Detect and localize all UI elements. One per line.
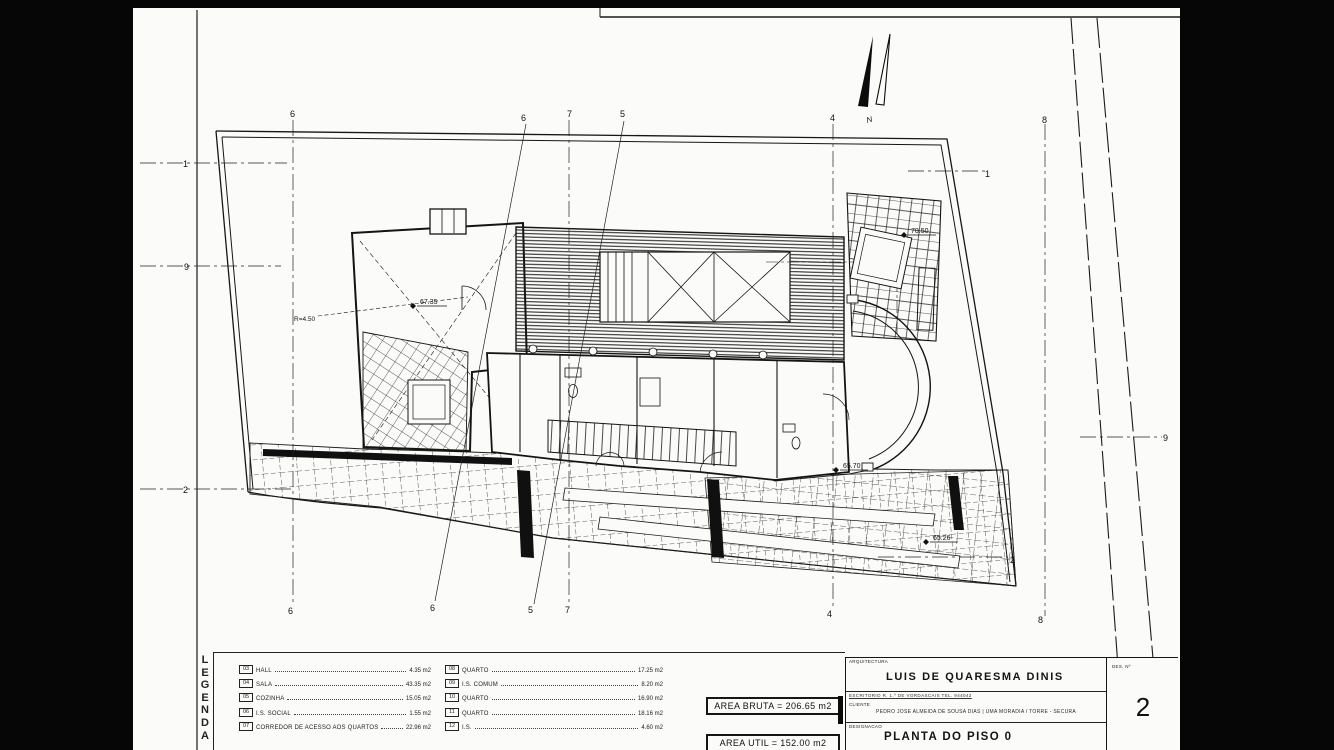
- floor-plan-drawing: 6 6 7 5 4 8 6 6 5 7 4 8 1 9 2 1 9 2 67.3…: [0, 0, 1334, 750]
- room-label: QUARTO: [462, 696, 489, 702]
- area-util-text: AREA UTIL = 152.00 m2: [720, 738, 827, 748]
- grid-axis-label: 6: [521, 113, 526, 123]
- room-number: 09: [445, 679, 459, 688]
- room-label: HALL: [256, 668, 272, 674]
- grid-axis-label: 1: [183, 159, 188, 169]
- title-block: ARQUITECTURA LUIS DE QUARESMA DINIS ESCR…: [845, 657, 1178, 750]
- entry-terrace: [847, 193, 941, 341]
- room-number: 11: [445, 708, 459, 717]
- road-lines: [1071, 18, 1161, 750]
- room-number: 10: [445, 693, 459, 702]
- grid-axis-label: 9: [184, 262, 189, 272]
- room-label: QUARTO: [462, 711, 489, 717]
- legend-row: 04 SALA 43.35 m2: [239, 679, 431, 688]
- dotted-leader: [275, 685, 403, 686]
- grid-axis-label: 5: [528, 605, 533, 615]
- room-area: 4.35 m2: [409, 668, 431, 674]
- grid-axis-label: 6: [430, 603, 435, 613]
- grid-axis-label: 4: [830, 113, 835, 123]
- office-row: ESCRITORIO R. 1.º DE VORDASCAIS TEL. 944…: [846, 691, 1106, 701]
- legend-row: 07 CORREDOR DE ACESSO AOS QUARTOS 22.96 …: [239, 722, 431, 731]
- designation-row: DESIGNACAO PLANTA DO PISO 0: [846, 722, 1106, 750]
- level-value: 65.70: [843, 463, 861, 470]
- client-line: PEDRO JOSE ALMEIDA DE SOUSA DIAS | UMA M…: [876, 709, 1076, 715]
- legend-row: 09 I.S. COMUM 8.20 m2: [445, 679, 663, 688]
- level-value: 65.26: [933, 535, 951, 542]
- title-block-main: ARQUITECTURA LUIS DE QUARESMA DINIS ESCR…: [846, 658, 1106, 750]
- room-area: 4.60 m2: [641, 725, 663, 731]
- legend-row: 08 QUARTO 17.25 m2: [445, 665, 663, 674]
- scanned-plan-sheet: { "plan": { "grid": { "top": ["6", "6", …: [0, 0, 1334, 750]
- legend-row: 10 QUARTO 16.90 m2: [445, 693, 663, 702]
- area-bruta-text: AREA BRUTA = 206.65 m2: [714, 701, 831, 711]
- room-label: I.S. SOCIAL: [256, 711, 291, 717]
- room-number: 05: [239, 693, 253, 702]
- room-number: 03: [239, 665, 253, 674]
- grid-axis-label: 7: [567, 109, 572, 119]
- client-label: CLIENTE: [849, 702, 870, 707]
- room-label: SALA: [256, 682, 272, 688]
- room-number: 07: [239, 722, 253, 731]
- grid-axis-label: 6: [288, 606, 293, 616]
- legend-column-1: 03 HALL 4.35 m2 04 SALA 43.35 m2 05 COZI…: [239, 665, 431, 736]
- scan-black-bar-right: [1180, 0, 1334, 750]
- room-area: 17.25 m2: [638, 668, 663, 674]
- dotted-leader: [381, 728, 402, 729]
- grid-axis-label: 8: [1042, 115, 1047, 125]
- designation-label: DESIGNACAO: [849, 724, 882, 729]
- room-area: 16.90 m2: [638, 696, 663, 702]
- room-label: COZINHA: [256, 696, 284, 702]
- grid-axis-label: 1: [985, 169, 990, 179]
- sheet-number-cell: DES. Nº 2: [1106, 658, 1179, 750]
- room-number: 06: [239, 708, 253, 717]
- level-value: 70.50: [911, 228, 929, 235]
- scan-black-bar-top: [0, 0, 1334, 8]
- room-label: CORREDOR DE ACESSO AOS QUARTOS: [256, 725, 378, 731]
- room-area: 8.20 m2: [641, 682, 663, 688]
- room-area: 1.55 m2: [409, 711, 431, 717]
- architect-row: ARQUITECTURA LUIS DE QUARESMA DINIS: [846, 658, 1106, 691]
- room-area: 15.05 m2: [406, 696, 431, 702]
- room-number: 04: [239, 679, 253, 688]
- area-bruta-box: AREA BRUTA = 206.65 m2: [706, 697, 840, 715]
- legend-row: 03 HALL 4.35 m2: [239, 665, 431, 674]
- grid-axis-label: 9: [1163, 433, 1168, 443]
- ink-mark: [838, 696, 843, 724]
- dotted-leader: [287, 699, 403, 700]
- sheet-number: 2: [1107, 692, 1179, 723]
- room-area: 43.35 m2: [406, 682, 431, 688]
- legend-column-2: 08 QUARTO 17.25 m2 09 I.S. COMUM 8.20 m2…: [445, 665, 663, 736]
- room-number: 12: [445, 722, 459, 731]
- area-util-box: AREA UTIL = 152.00 m2: [706, 734, 840, 750]
- room-label: QUARTO: [462, 668, 489, 674]
- dotted-leader: [492, 671, 635, 672]
- room-area: 18.16 m2: [638, 711, 663, 717]
- grid-axis-label: 8: [1038, 615, 1043, 625]
- architect-name: LUIS DE QUARESMA DINIS: [886, 671, 1064, 683]
- office-line: ESCRITORIO R. 1.º DE VORDASCAIS TEL. 944…: [849, 693, 972, 698]
- client-row: CLIENTE PEDRO JOSE ALMEIDA DE SOUSA DIAS…: [846, 701, 1106, 722]
- dotted-leader: [275, 671, 407, 672]
- north-label: N: [865, 115, 873, 125]
- room-number: 08: [445, 665, 459, 674]
- room-label: I.S.: [462, 725, 472, 731]
- legend-row: 05 COZINHA 15.05 m2: [239, 693, 431, 702]
- dotted-leader: [294, 714, 406, 715]
- legend-title-vertical: LE GE ND A: [197, 654, 213, 742]
- grid-axis-label: 2: [1010, 555, 1015, 565]
- grid-axis-label: 6: [290, 109, 295, 119]
- room-area: 22.96 m2: [406, 725, 431, 731]
- section-label: ARQUITECTURA: [849, 659, 888, 664]
- drawing-title: PLANTA DO PISO 0: [884, 731, 1012, 743]
- dotted-leader: [492, 714, 635, 715]
- grid-axis-label: 5: [620, 109, 625, 119]
- scan-black-bar-left: [0, 0, 133, 750]
- dotted-leader: [501, 685, 638, 686]
- grid-axis-label: 7: [565, 605, 570, 615]
- dotted-leader: [492, 699, 635, 700]
- sheet-number-label: DES. Nº: [1112, 664, 1131, 669]
- north-arrow-icon: N: [858, 34, 890, 125]
- legend-row: 06 I.S. SOCIAL 1.55 m2: [239, 708, 431, 717]
- legend-row: 12 I.S. 4.60 m2: [445, 722, 663, 731]
- grid-axis-label: 2: [183, 485, 188, 495]
- radius-label: R=4.50: [294, 316, 316, 323]
- dotted-leader: [475, 728, 639, 729]
- grid-axis-label: 4: [827, 609, 832, 619]
- room-label: I.S. COMUM: [462, 682, 498, 688]
- legend-row: 11 QUARTO 18.16 m2: [445, 708, 663, 717]
